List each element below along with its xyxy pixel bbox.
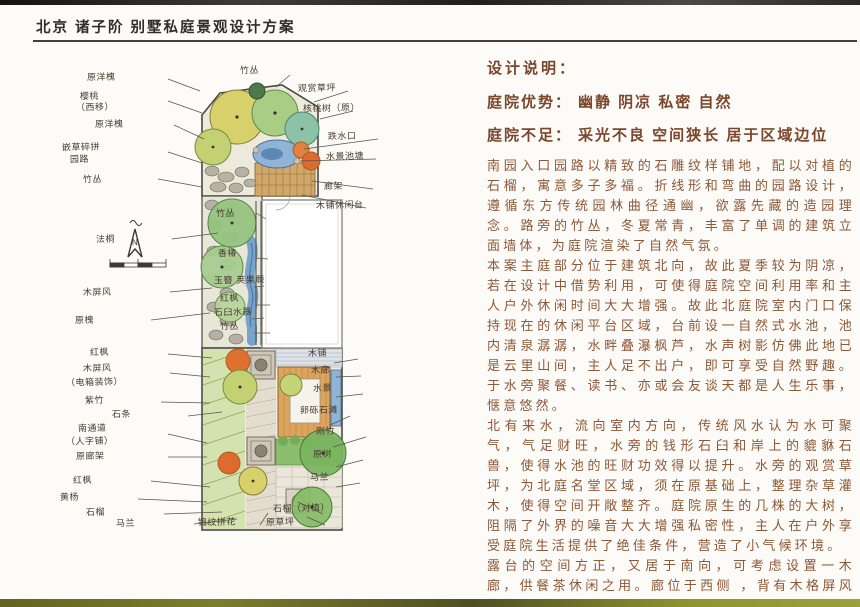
plan-label: 原洋槐	[87, 73, 116, 84]
plan-label: 石榴（对植）	[273, 503, 330, 514]
plan-label: 黄杨	[60, 493, 79, 503]
plan-label: 原廊架	[76, 452, 105, 463]
plan-label: 嵌草碎拼	[62, 143, 100, 154]
cons-line: 庭院不足：采光不良 空间狭长 居于区域边位	[487, 124, 855, 145]
plan-label: 香椿	[218, 249, 237, 259]
plan-label: 原槐	[75, 316, 94, 326]
plan-label: 原洋槐	[95, 120, 124, 131]
plan-label: 竹丛	[240, 66, 259, 76]
plan-label: 马兰	[116, 519, 135, 529]
plan-label: 核桃树（原）	[303, 103, 360, 114]
notes-paragraph: 南园入口园路以精致的石雕纹样铺地，配以对植的石榴，寓意多子多福。折线形和弯曲的园…	[487, 157, 855, 257]
plan-label: 法桐	[96, 235, 115, 245]
plan-label: 石榴	[86, 508, 105, 518]
stream	[250, 241, 254, 341]
svg-text:N: N	[132, 238, 138, 247]
plan-label: 玉簪 荚果蕨	[214, 275, 265, 286]
photo-edge-top	[0, 0, 860, 5]
scale-bar	[110, 259, 166, 267]
plan-label: 锦纹拼花	[198, 518, 236, 529]
title-rule	[33, 40, 857, 42]
plan-label: 南通道	[78, 424, 107, 435]
plan-label: 跌水口	[328, 132, 357, 143]
pros-line: 庭院优势：幽静 阴凉 私密 自然	[487, 91, 855, 112]
garden-plan: N 原洋槐 樱桃 （西移） 原洋槐 嵌草碎拼 园路 竹丛 法桐 木屏风 原槐 红…	[0, 48, 480, 603]
plan-label: 原树	[313, 450, 332, 460]
plan-label: 石臼水器	[214, 308, 252, 319]
page: 北京 诸子阶 别墅私庭景观设计方案	[0, 0, 860, 607]
plan-label: （人字铺）	[66, 437, 114, 448]
plan-label: 石条	[112, 410, 131, 420]
photo-edge-bottom	[0, 599, 860, 607]
plan-label: 水景	[313, 384, 332, 394]
plan-label: 原草坪	[266, 518, 295, 529]
plan-label: 木屏风	[83, 288, 112, 299]
plan-label: 木铺	[308, 349, 327, 359]
pros-values: 幽静 阴凉 私密 自然	[578, 94, 733, 111]
plan-label: 木廊	[311, 366, 330, 376]
plan-label: 红枫	[90, 348, 109, 358]
plan-label: 廊架	[324, 182, 343, 192]
cons-label: 庭院不足：	[487, 127, 572, 144]
plan-label: 红枫	[73, 476, 92, 486]
building-footprint	[262, 196, 342, 362]
water-feature-strip	[331, 370, 341, 426]
plan-label: （电箱装饰）	[66, 377, 123, 388]
plan-label: 刚竹	[316, 427, 335, 437]
plan-label: 园路	[70, 155, 89, 165]
plan-label: 卵砾石滩	[300, 406, 338, 417]
notes-heading: 设计说明：	[487, 57, 855, 78]
page-title: 北京 诸子阶 别墅私庭景观设计方案	[36, 16, 296, 37]
north-arrow: N	[128, 221, 142, 258]
plan-label: （西移）	[76, 103, 114, 114]
design-notes: 设计说明： 庭院优势：幽静 阴凉 私密 自然 庭院不足：采光不良 空间狭长 居于…	[487, 57, 855, 607]
plan-label: 紫竹	[85, 396, 104, 406]
plan-label: 木铺休闲台	[316, 201, 364, 212]
plan-label: 木屏风	[83, 364, 112, 375]
plan-label: 水景池塘	[326, 152, 364, 163]
plan-label: 竹丛	[83, 175, 102, 185]
plan-label: 樱桃	[80, 92, 99, 102]
plan-label: 观赏草坪	[298, 84, 336, 95]
plan-label: 竹丛	[216, 209, 235, 219]
plan-label: 红枫	[220, 294, 239, 304]
notes-paragraph: 本案主庭部分位于建筑北向，故此夏季较为阴凉，若在设计中借势利用，可使得庭院空间利…	[487, 257, 855, 417]
plan-label: 马兰	[310, 473, 329, 483]
plan-label: 竹丛	[220, 322, 239, 332]
cons-values: 采光不良 空间狭长 居于区域边位	[578, 127, 828, 144]
pros-label: 庭院优势：	[487, 94, 572, 111]
notes-paragraph: 北有来水，流向室内方向，传统风水认为水可聚气，气足财旺，水旁的钱形石臼和岸上的貔…	[487, 417, 855, 557]
